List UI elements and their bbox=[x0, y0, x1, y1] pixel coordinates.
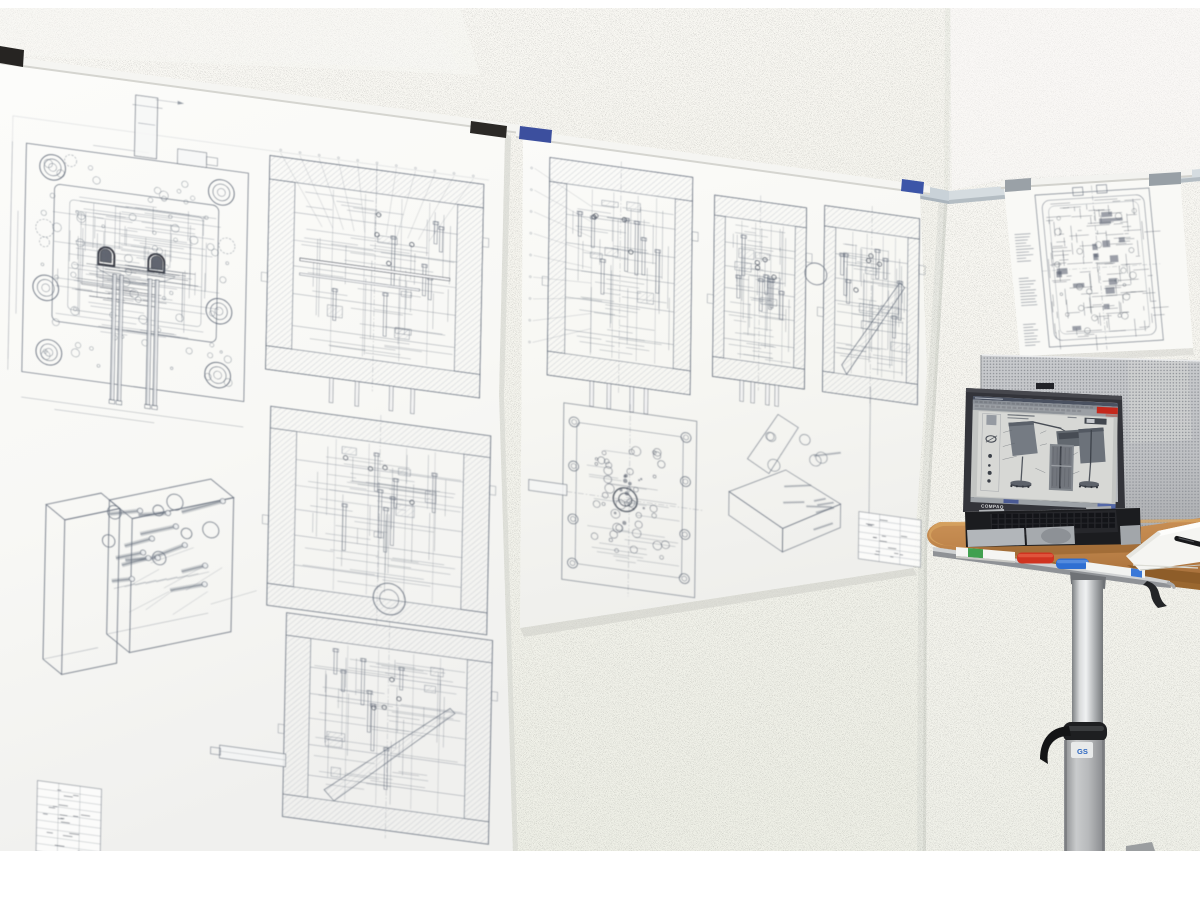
svg-text:COMPAQ: COMPAQ bbox=[981, 504, 1004, 510]
svg-text:GS: GS bbox=[1077, 747, 1088, 756]
